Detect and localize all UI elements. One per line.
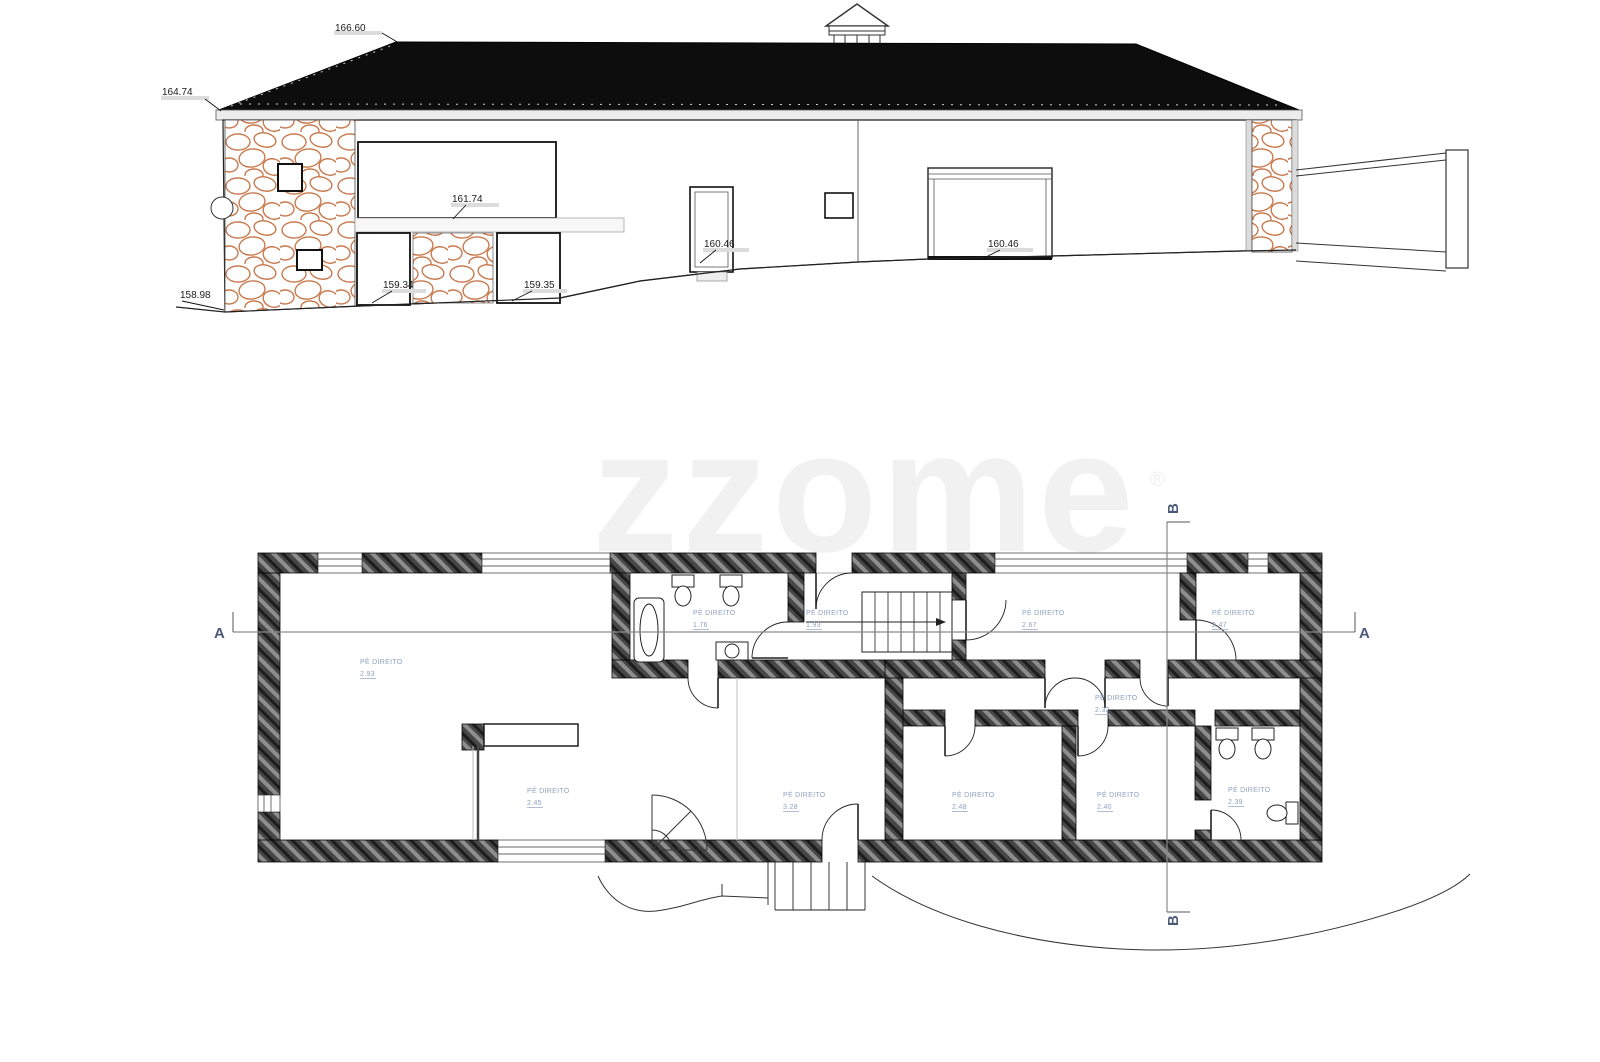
section-marker-b-bottom: B [1165,915,1182,926]
svg-text:2.48: 2.48 [952,804,967,811]
room-label-middle-room: PÉ DIREITO3.28 [783,790,826,812]
svg-text:PÉ DIREITO: PÉ DIREITO [693,608,736,617]
bidet [720,575,742,606]
dim-label-ground-left: 158.98 [180,290,211,301]
toilet [1216,728,1238,759]
middle-room-top-door [688,678,718,708]
corridor-double-door [1045,678,1105,708]
toilet [672,575,694,606]
svg-text:2.93: 2.93 [360,671,375,678]
window-top-2 [482,553,610,573]
window-mid [825,193,853,218]
stone-pillar-right [1252,120,1292,252]
exterior-steps [768,862,865,910]
section-marker-a-left: A [214,625,225,642]
svg-text:PÉ DIREITO: PÉ DIREITO [1097,790,1140,799]
bidet [1252,728,1274,759]
svg-text:PÉ DIREITO: PÉ DIREITO [806,608,849,617]
dim-label-opening-right: 159.35 [524,280,555,291]
wall-detail-circle [211,197,233,219]
eave-band [216,110,1302,120]
middle-room-bottom-door [822,804,858,840]
room-label-bedroom-1: PÉ DIREITO2.48 [952,790,995,812]
svg-text:1.76: 1.76 [693,622,708,629]
bathroom-2-fixtures [1216,728,1298,824]
floor-plan-drawing: PÉ DIREITO2.93 PÉ DIREITO2.45 PÉ DIREITO… [258,553,1470,950]
room-label-bathroom-2: PÉ DIREITO2.39 [1228,785,1271,807]
svg-text:PÉ DIREITO: PÉ DIREITO [1022,608,1065,617]
dim-label-entry-door: 160.46 [704,239,735,250]
bedroom-1-door [945,726,975,756]
bathroom-1-fixtures [634,575,748,662]
facade [211,120,1298,312]
terrain-contours [598,874,1470,950]
room-label-bathroom-1: PÉ DIREITO1.76 [693,608,736,630]
room-label-kitchen: PÉ DIREITO2.45 [527,786,570,808]
sink [1267,802,1298,824]
svg-text:3.28: 3.28 [783,804,798,811]
window-bottom [498,840,605,862]
room-label-room-top-right: PÉ DIREITO2.47 [1212,608,1255,630]
window-top-3 [995,553,1187,573]
dim-label-ridge: 166.60 [335,23,366,34]
hallway-door [1140,678,1168,706]
hall-corridor-door [966,600,1006,640]
doors [688,573,1241,840]
svg-text:2.40: 2.40 [1097,804,1112,811]
kitchen-counter [473,724,578,840]
room-label-corridor: PÉ DIREITO2.67 [1022,608,1065,630]
interior-stair [806,592,952,652]
svg-text:2.32: 2.32 [1095,707,1110,714]
svg-text:2.45: 2.45 [527,800,542,807]
window-left [258,795,280,812]
svg-text:2.47: 2.47 [1212,622,1227,629]
drawing-canvas: zzome ® [0,0,1600,1062]
svg-text:PÉ DIREITO: PÉ DIREITO [952,790,995,799]
stone-wall-left [225,120,355,312]
architectural-drawing-sheet: zzome ® [0,0,1600,1062]
svg-text:PÉ DIREITO: PÉ DIREITO [360,657,403,666]
window-top-4 [1248,553,1268,573]
svg-text:1.93: 1.93 [806,622,821,629]
room-label-bedroom-2: PÉ DIREITO2.40 [1097,790,1140,812]
bedroom-2-door [1078,726,1108,756]
plan-windows [258,553,1268,862]
section-marker-a-right: A [1359,625,1370,642]
entry-door [690,187,733,272]
bathroom-1-door [752,622,788,658]
opening-left [357,233,410,305]
window-top-1 [318,553,362,573]
window-small-lower [297,250,322,270]
chimney [826,4,888,46]
porch-lintel [355,218,624,232]
svg-text:2.39: 2.39 [1228,799,1243,806]
svg-text:PÉ DIREITO: PÉ DIREITO [1212,608,1255,617]
fence-right [1296,150,1468,271]
watermark-registered-mark: ® [1150,469,1165,491]
dim-label-opening-left: 159.34 [383,280,414,291]
window-small-upper [278,164,302,191]
elevation-drawing: 166.60 164.74 161.74 160.46 160.46 159.3… [161,4,1468,312]
sink [716,642,748,660]
interior-walls [462,573,1322,840]
section-marker-b-top: B [1165,503,1182,514]
dim-label-garage-door: 160.46 [988,239,1019,250]
bathroom-2-door [1211,810,1241,840]
roof [216,42,1302,120]
svg-text:PÉ DIREITO: PÉ DIREITO [783,790,826,799]
dim-label-eave-left: 164.74 [162,87,193,98]
dim-label-window-band: 161.74 [452,194,483,205]
svg-text:PÉ DIREITO: PÉ DIREITO [1095,693,1138,702]
fence-post [1446,150,1468,268]
room-label-entrance-hall: PÉ DIREITO1.93 [806,608,849,630]
svg-text:2.67: 2.67 [1022,622,1037,629]
room-label-living-room: PÉ DIREITO2.93 [360,657,403,679]
svg-text:PÉ DIREITO: PÉ DIREITO [1228,785,1271,794]
svg-text:PÉ DIREITO: PÉ DIREITO [527,786,570,795]
